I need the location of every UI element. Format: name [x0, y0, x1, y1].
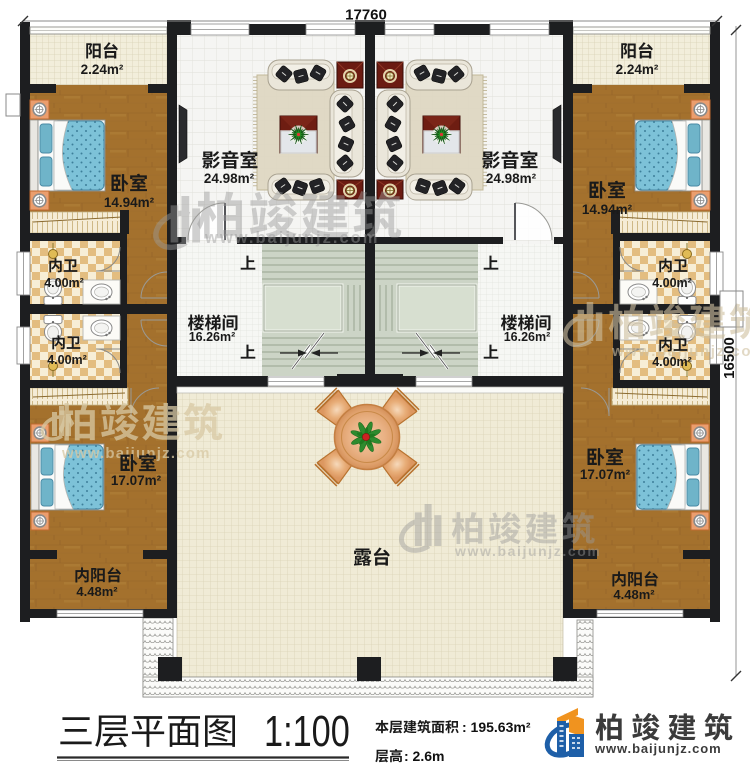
svg-text:4.48m²: 4.48m² [613, 587, 655, 602]
svg-text:: 2.6m: : 2.6m [404, 748, 444, 764]
svg-text:16.26m²: 16.26m² [504, 330, 551, 344]
svg-text:www.baijunjz.com: www.baijunjz.com [594, 741, 722, 756]
svg-text:1:100: 1:100 [264, 707, 350, 756]
svg-text:24.98m²: 24.98m² [204, 171, 255, 186]
svg-text:2.24m²: 2.24m² [81, 62, 124, 77]
svg-text:14.94m²: 14.94m² [104, 195, 155, 210]
svg-text:2.24m²: 2.24m² [616, 62, 659, 77]
svg-text:17.07m²: 17.07m² [111, 473, 162, 488]
svg-text:: 195.63m²: : 195.63m² [462, 719, 531, 735]
svg-text:4.00m²: 4.00m² [652, 355, 692, 369]
svg-text:4.48m²: 4.48m² [76, 584, 118, 599]
svg-text:www.baijunjz.com: www.baijunjz.com [204, 229, 379, 247]
svg-text:16.26m²: 16.26m² [189, 330, 236, 344]
svg-text:4.00m²: 4.00m² [44, 276, 84, 290]
svg-text:16500: 16500 [721, 337, 738, 379]
svg-text:4.00m²: 4.00m² [47, 353, 87, 367]
svg-text:www.baijunjz.com: www.baijunjz.com [61, 445, 211, 462]
svg-text:4.00m²: 4.00m² [652, 276, 692, 290]
svg-text:17760: 17760 [345, 7, 387, 24]
svg-text:www.baijunjz.com: www.baijunjz.com [454, 543, 601, 559]
svg-text:24.98m²: 24.98m² [486, 171, 537, 186]
svg-text:14.94m²: 14.94m² [582, 202, 633, 217]
svg-text:17.07m²: 17.07m² [580, 467, 631, 482]
